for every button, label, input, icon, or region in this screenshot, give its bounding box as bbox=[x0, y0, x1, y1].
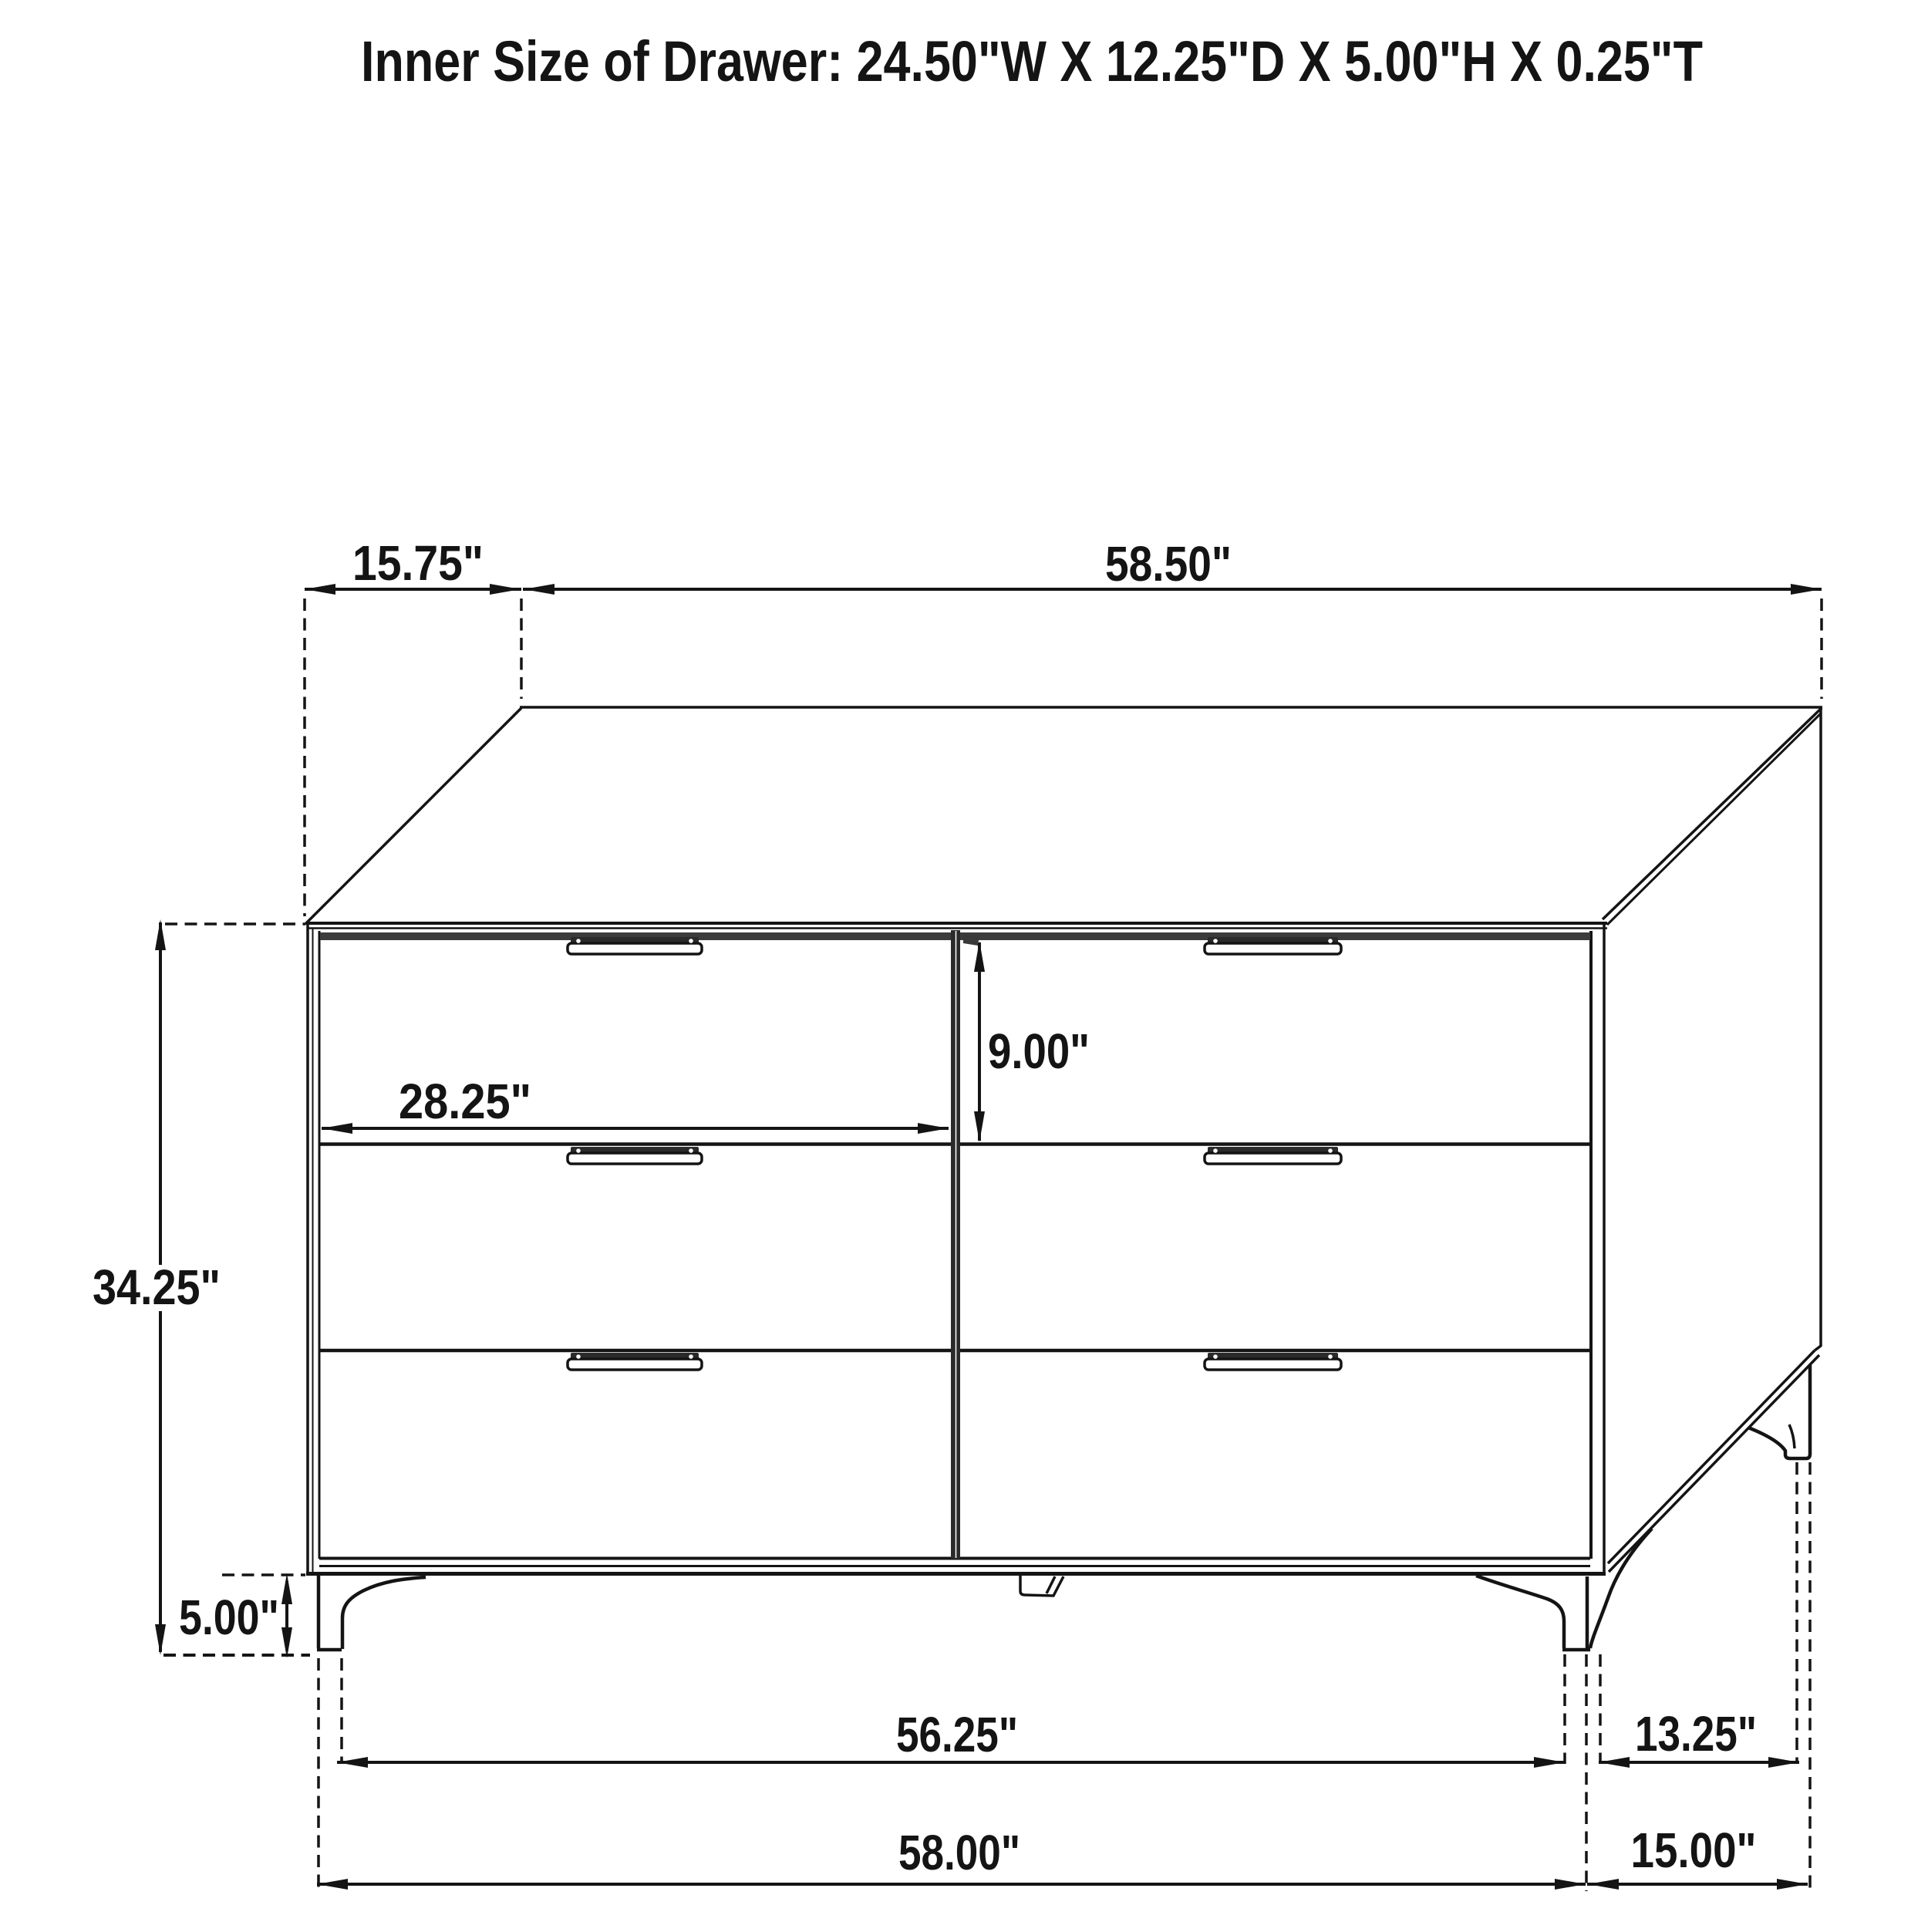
svg-text:Inner Size of Drawer: 24.50"W: Inner Size of Drawer: 24.50"W X 12.25"D … bbox=[361, 29, 1703, 93]
svg-text:56.25": 56.25" bbox=[896, 1707, 1018, 1762]
svg-text:15.00": 15.00" bbox=[1631, 1822, 1757, 1878]
svg-text:58.50": 58.50" bbox=[1105, 536, 1232, 592]
svg-text:34.25": 34.25" bbox=[93, 1259, 221, 1315]
svg-text:5.00": 5.00" bbox=[179, 1590, 279, 1645]
svg-text:9.00": 9.00" bbox=[988, 1023, 1090, 1079]
svg-text:28.25": 28.25" bbox=[399, 1074, 531, 1129]
svg-text:13.25": 13.25" bbox=[1635, 1706, 1757, 1762]
svg-text:15.75": 15.75" bbox=[352, 535, 484, 591]
svg-text:58.00": 58.00" bbox=[898, 1825, 1020, 1880]
